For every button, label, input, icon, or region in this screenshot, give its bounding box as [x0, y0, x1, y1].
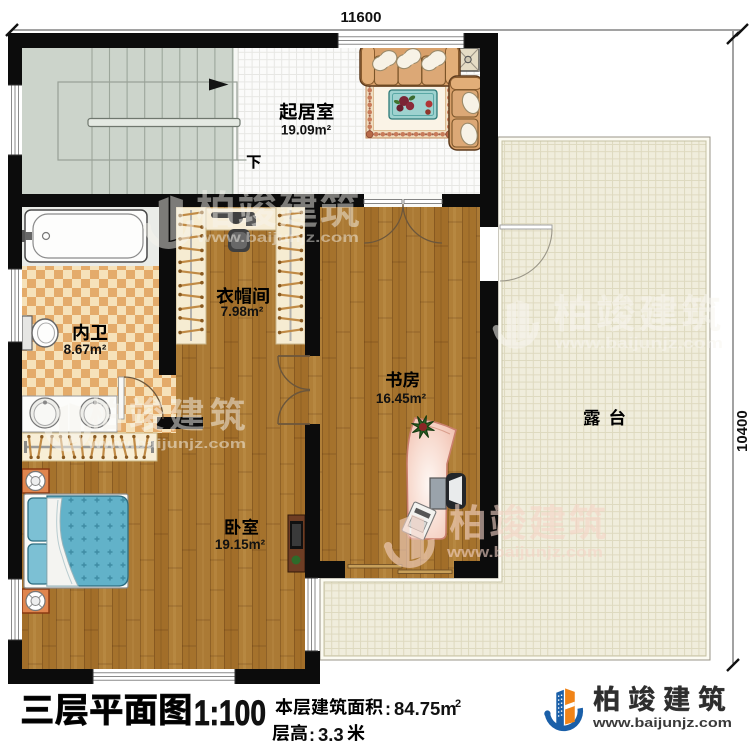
svg-text::: :: [385, 699, 391, 719]
svg-text:www.baijunjz.com: www.baijunjz.com: [87, 437, 246, 451]
svg-text:1:100: 1:100: [194, 694, 266, 733]
svg-text:19.15m²: 19.15m²: [215, 537, 266, 552]
svg-text:www.baijunjz.com: www.baijunjz.com: [554, 336, 723, 352]
svg-text:10400: 10400: [734, 410, 750, 452]
svg-text:11600: 11600: [341, 9, 382, 26]
svg-text:19.09m²: 19.09m²: [281, 123, 332, 138]
svg-text:www.baijunjz.com: www.baijunjz.com: [446, 545, 603, 561]
svg-text:84.75m: 84.75m: [394, 698, 457, 719]
svg-text:16.45m²: 16.45m²: [376, 391, 427, 406]
svg-text:www.baijunjz.com: www.baijunjz.com: [196, 230, 359, 245]
svg-text:3.3: 3.3: [318, 724, 344, 745]
svg-text:7.98m²: 7.98m²: [221, 304, 264, 319]
svg-text:8.67m²: 8.67m²: [64, 342, 107, 357]
svg-text::: :: [309, 725, 315, 745]
svg-text:www.baijunjz.com: www.baijunjz.com: [592, 716, 732, 730]
svg-text:2: 2: [455, 698, 461, 710]
